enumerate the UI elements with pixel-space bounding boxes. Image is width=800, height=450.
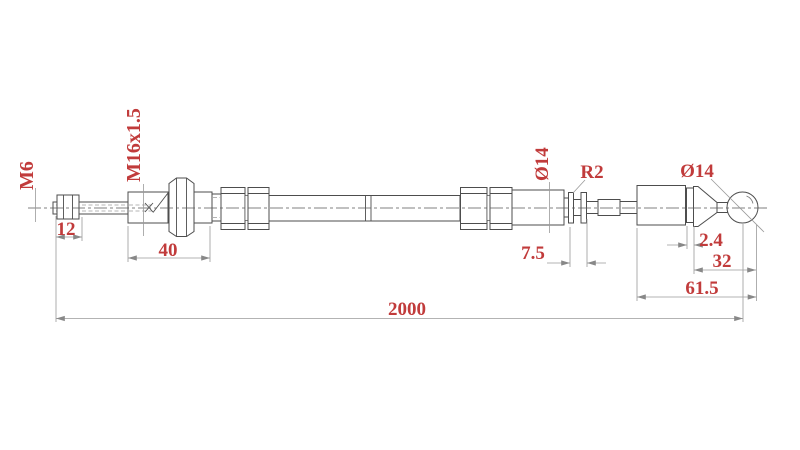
- dim-label-m16x1-5: M16x1.5: [123, 108, 145, 182]
- dim-label-2-4: 2.4: [699, 230, 723, 251]
- dim-label-12: 12: [57, 219, 76, 240]
- ball-end: [727, 192, 758, 223]
- dim-label-7-5: 7.5: [521, 243, 545, 264]
- technical-drawing-page: M6 M16x1.5 12 40 Ø14 R2 7.5 Ø14 2.4 32 6…: [0, 0, 800, 450]
- dim-label-dia14-groove: Ø14: [532, 147, 553, 181]
- dim-label-2000: 2000: [388, 299, 426, 320]
- dim-label-32: 32: [713, 251, 732, 272]
- crimp-sleeve-right: [461, 188, 513, 230]
- hex-nut-large: [169, 178, 194, 237]
- dim-label-m6: M6: [16, 161, 38, 190]
- cable-end-cylinder: [512, 190, 564, 225]
- hex-nut-small: [57, 195, 79, 219]
- dim-label-r2: R2: [580, 162, 603, 183]
- m16-fitting-body: [128, 192, 168, 223]
- cable-technical-drawing: M6 M16x1.5 12 40 Ø14 R2 7.5 Ø14 2.4 32 6…: [0, 0, 800, 450]
- dim-label-dia14-ball: Ø14: [680, 161, 714, 182]
- dim-label-40: 40: [159, 240, 178, 261]
- dim-label-61-5: 61.5: [685, 278, 718, 299]
- ball-end-barrel: [637, 186, 728, 227]
- threaded-section: [194, 192, 221, 223]
- steel-cable: [587, 200, 638, 216]
- crimp-sleeve-left: [221, 188, 269, 230]
